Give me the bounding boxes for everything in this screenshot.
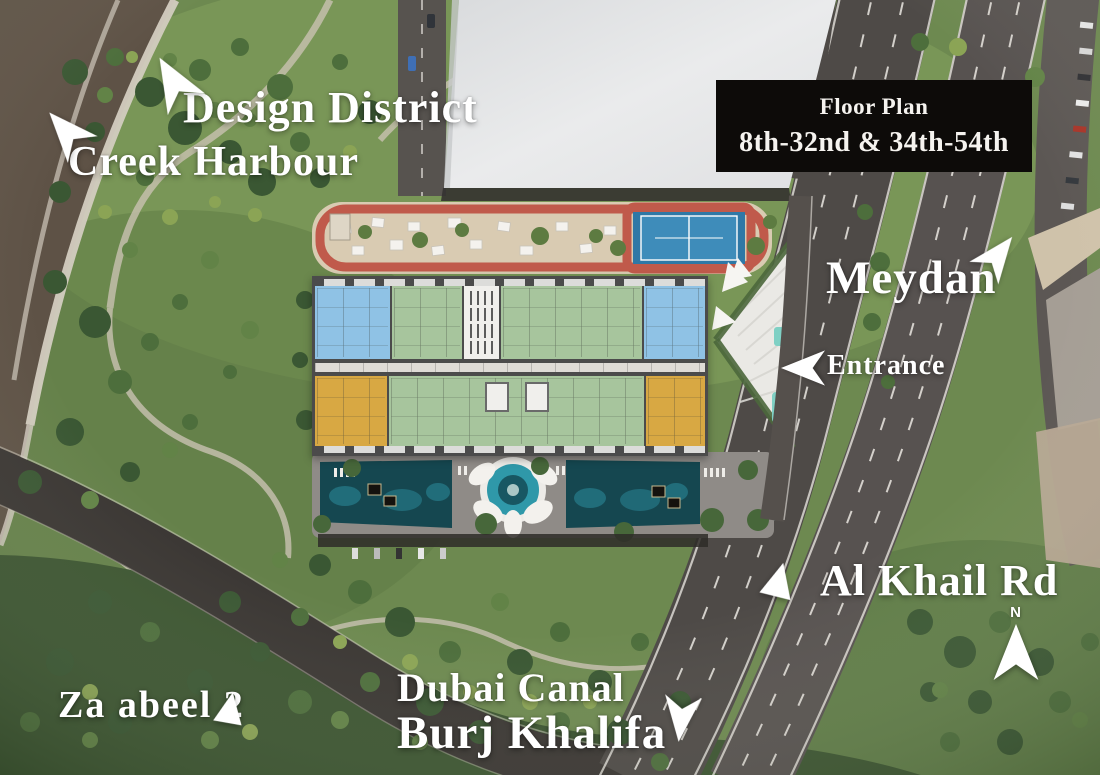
label-burj-khalifa: Burj Khalifa — [397, 710, 666, 757]
elevator-cell — [470, 341, 472, 355]
units-row-bottom — [315, 374, 705, 446]
label-al-khail-rd: Al Khail Rd — [820, 559, 1058, 603]
compass-needle-icon — [988, 623, 1044, 681]
unit-corner-top-left — [315, 286, 392, 359]
label-design-district: Design District — [183, 86, 478, 130]
units-row-top — [315, 286, 705, 361]
central-corridor — [315, 361, 705, 374]
unit-mid-bottom — [389, 376, 646, 446]
unit-corner-bottom-right — [646, 376, 705, 446]
elevator-cell — [477, 291, 479, 305]
floor-plan-badge-floors: 8th-32nd & 34th-54th — [739, 127, 1009, 159]
elevator-cell — [484, 308, 486, 322]
elevator-cell — [470, 324, 472, 338]
building-floor-plan — [312, 276, 708, 456]
elevator-cell — [477, 308, 479, 322]
elevator-cell — [477, 324, 479, 338]
elevator-cell — [484, 291, 486, 305]
floor-plan-badge: Floor Plan 8th-32nd & 34th-54th — [716, 80, 1032, 172]
elevator-cell — [477, 341, 479, 355]
dubai-canal-arrow-icon — [656, 694, 707, 745]
unit-mid-top-left — [392, 286, 464, 359]
compass: N — [984, 604, 1048, 686]
unit-corner-bottom-left — [315, 376, 389, 446]
elevator-core — [464, 286, 501, 359]
elevator-cell — [470, 291, 472, 305]
elevator-cell — [484, 341, 486, 355]
label-creek-harbour: Creek Harbour — [68, 141, 359, 183]
balcony-strip-top — [315, 279, 705, 286]
za-abeel-arrow-icon — [207, 687, 253, 729]
elevator-cell — [470, 308, 472, 322]
elevator-cell — [491, 291, 493, 305]
label-dubai-canal: Dubai Canal — [397, 668, 625, 708]
elevator-cell — [491, 341, 493, 355]
balcony-strip-bottom — [315, 446, 705, 453]
compass-north-label: N — [984, 604, 1048, 621]
elevator-cell — [484, 324, 486, 338]
unit-mid-top-right — [501, 286, 644, 359]
stair-block — [525, 382, 549, 412]
label-entrance: Entrance — [827, 352, 945, 380]
stair-block — [485, 382, 509, 412]
unit-corner-top-right — [644, 286, 705, 359]
floor-plan-badge-title: Floor Plan — [820, 94, 929, 120]
site-aerial-map: Floor Plan 8th-32nd & 34th-54th Design D… — [0, 0, 1100, 775]
elevator-cell — [491, 324, 493, 338]
entrance-arrow-icon — [781, 345, 825, 391]
elevator-cell — [491, 308, 493, 322]
